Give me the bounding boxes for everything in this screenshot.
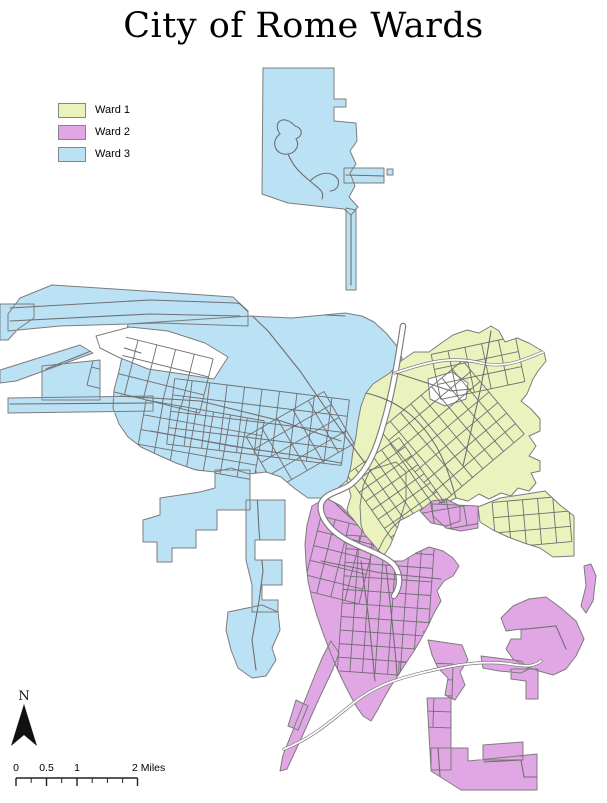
north-arrow-label: N	[18, 689, 29, 704]
map-legend: Ward 1 Ward 2 Ward 3	[58, 103, 130, 169]
legend-label: Ward 3	[95, 148, 130, 161]
map-document: N00.512 Miles City of Rome Wards Ward 1 …	[0, 0, 607, 803]
scale-bar: 00.512 Miles	[13, 762, 165, 786]
scale-label: 1	[74, 762, 80, 774]
scale-label: 0	[13, 762, 19, 774]
legend-label: Ward 1	[95, 104, 130, 117]
north-arrow-glyph	[11, 704, 37, 746]
scale-label: 2 Miles	[132, 762, 165, 774]
north-arrow: N	[11, 689, 37, 746]
legend-item-ward1: Ward 1	[58, 103, 130, 118]
page-title: City of Rome Wards	[0, 6, 607, 46]
legend-item-ward3: Ward 3	[58, 147, 130, 162]
ward2-color-swatch	[58, 125, 86, 140]
ward3-color-swatch	[58, 147, 86, 162]
ward1-color-swatch	[58, 103, 86, 118]
legend-label: Ward 2	[95, 126, 130, 139]
scale-label: 0.5	[39, 762, 54, 774]
legend-item-ward2: Ward 2	[58, 125, 130, 140]
